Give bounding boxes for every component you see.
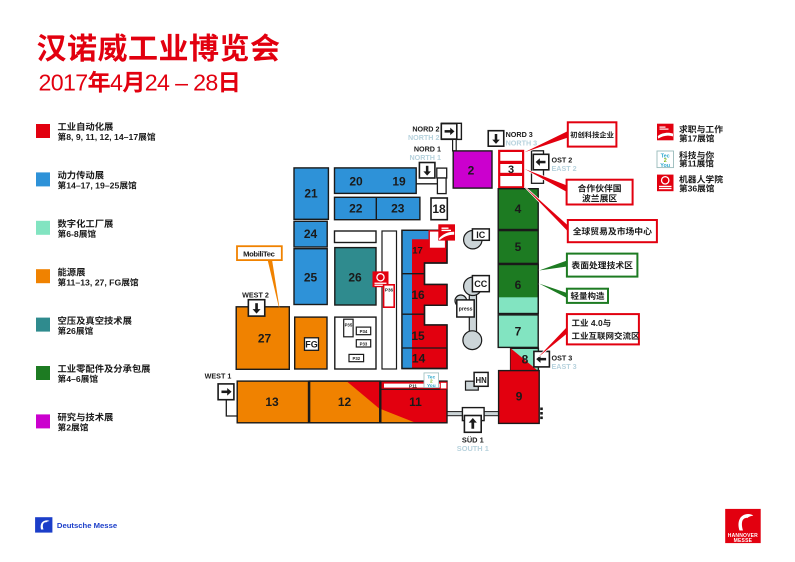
svg-text:第6-8展馆: 第6-8展馆 [58, 229, 97, 239]
svg-text:数字化工厂展: 数字化工厂展 [58, 219, 114, 229]
svg-text:P11: P11 [409, 383, 417, 388]
svg-text:2: 2 [468, 164, 475, 178]
svg-text:23: 23 [391, 202, 405, 216]
svg-text:WEST 2: WEST 2 [242, 290, 269, 299]
svg-text:第14–17, 19–25展馆: 第14–17, 19–25展馆 [58, 181, 138, 191]
svg-text:20: 20 [349, 174, 363, 188]
svg-text:研究与技术展: 研究与技术展 [58, 413, 114, 423]
svg-text:FG: FG [305, 340, 318, 350]
svg-text:13: 13 [265, 395, 279, 409]
svg-text:P33: P33 [360, 341, 368, 346]
svg-text:2017年4月24 – 28日: 2017年4月24 – 28日 [39, 70, 241, 96]
svg-text:14: 14 [412, 352, 426, 366]
svg-text:CC: CC [474, 279, 487, 289]
svg-text:轻量构造: 轻量构造 [570, 291, 605, 301]
svg-text:工业 4.0与: 工业 4.0与 [572, 318, 612, 328]
svg-text:动力传动展: 动力传动展 [58, 171, 105, 181]
svg-text:能源展: 能源展 [58, 267, 87, 277]
svg-text:Deutsche Messe: Deutsche Messe [57, 521, 118, 530]
svg-text:SOUTH 1: SOUTH 1 [457, 444, 489, 453]
svg-text:汉诺威工业博览会: 汉诺威工业博览会 [37, 33, 281, 66]
svg-text:You: You [427, 383, 436, 389]
svg-text:22: 22 [349, 202, 363, 216]
svg-text:8: 8 [522, 353, 529, 367]
svg-text:P35: P35 [345, 323, 353, 328]
svg-text:第4–6展馆: 第4–6展馆 [58, 374, 99, 384]
svg-text:合作伙伴国: 合作伙伴国 [578, 183, 622, 193]
svg-text:第17展馆: 第17展馆 [679, 134, 715, 144]
svg-text:18: 18 [432, 202, 446, 216]
svg-text:11: 11 [409, 395, 422, 409]
svg-text:9: 9 [516, 390, 523, 404]
svg-text:工业零配件及分承包展: 工业零配件及分承包展 [58, 364, 152, 374]
svg-text:波兰展区: 波兰展区 [582, 194, 617, 204]
svg-text:MESSE: MESSE [734, 538, 753, 544]
svg-text:15: 15 [411, 329, 425, 343]
svg-text:NORTH 2: NORTH 2 [408, 133, 440, 142]
svg-text:第11–13, 27, FG展馆: 第11–13, 27, FG展馆 [58, 277, 139, 287]
svg-text:MobiliTec: MobiliTec [243, 249, 274, 258]
svg-text:表面处理技术区: 表面处理技术区 [571, 260, 633, 270]
svg-text:工业互联网交流区: 工业互联网交流区 [572, 331, 641, 341]
svg-text:全球贸易及市场中心: 全球贸易及市场中心 [573, 226, 652, 236]
svg-text:P36: P36 [385, 288, 394, 293]
svg-text:3: 3 [508, 164, 514, 176]
svg-text:24: 24 [304, 227, 318, 241]
svg-text:第26展馆: 第26展馆 [58, 326, 94, 336]
svg-text:第2展馆: 第2展馆 [58, 423, 89, 433]
svg-text:26: 26 [348, 271, 362, 285]
svg-text:6: 6 [515, 278, 522, 292]
svg-text:第11展馆: 第11展馆 [679, 159, 714, 169]
svg-text:HN: HN [475, 376, 487, 385]
svg-text:27: 27 [258, 332, 272, 346]
svg-text:17: 17 [412, 246, 423, 257]
svg-text:You: You [660, 163, 670, 169]
svg-text:25: 25 [304, 271, 318, 285]
svg-text:press: press [459, 307, 473, 313]
svg-text:第8, 9, 11, 12, 14–17展馆: 第8, 9, 11, 12, 14–17展馆 [58, 132, 156, 142]
svg-text:NORTH 3: NORTH 3 [506, 139, 538, 148]
svg-text:初创科技企业: 初创科技企业 [570, 130, 614, 139]
svg-text:12: 12 [338, 395, 352, 409]
svg-text:7: 7 [515, 325, 522, 339]
svg-text:EAST 2: EAST 2 [552, 164, 577, 173]
svg-text:4: 4 [515, 202, 522, 216]
svg-text:16: 16 [411, 288, 425, 302]
svg-text:空压及真空技术展: 空压及真空技术展 [58, 316, 133, 326]
svg-text:工业自动化展: 工业自动化展 [58, 122, 114, 132]
svg-text:第36展馆: 第36展馆 [679, 183, 715, 193]
svg-text:EAST 3: EAST 3 [552, 362, 577, 371]
svg-text:WEST 1: WEST 1 [205, 371, 232, 380]
svg-text:21: 21 [304, 187, 318, 201]
svg-text:IC: IC [476, 230, 486, 240]
svg-text:19: 19 [392, 174, 406, 188]
svg-text:P32: P32 [352, 356, 360, 361]
svg-text:5: 5 [515, 240, 522, 254]
svg-text:P34: P34 [360, 329, 368, 334]
svg-text:NORTH 1: NORTH 1 [409, 153, 441, 162]
